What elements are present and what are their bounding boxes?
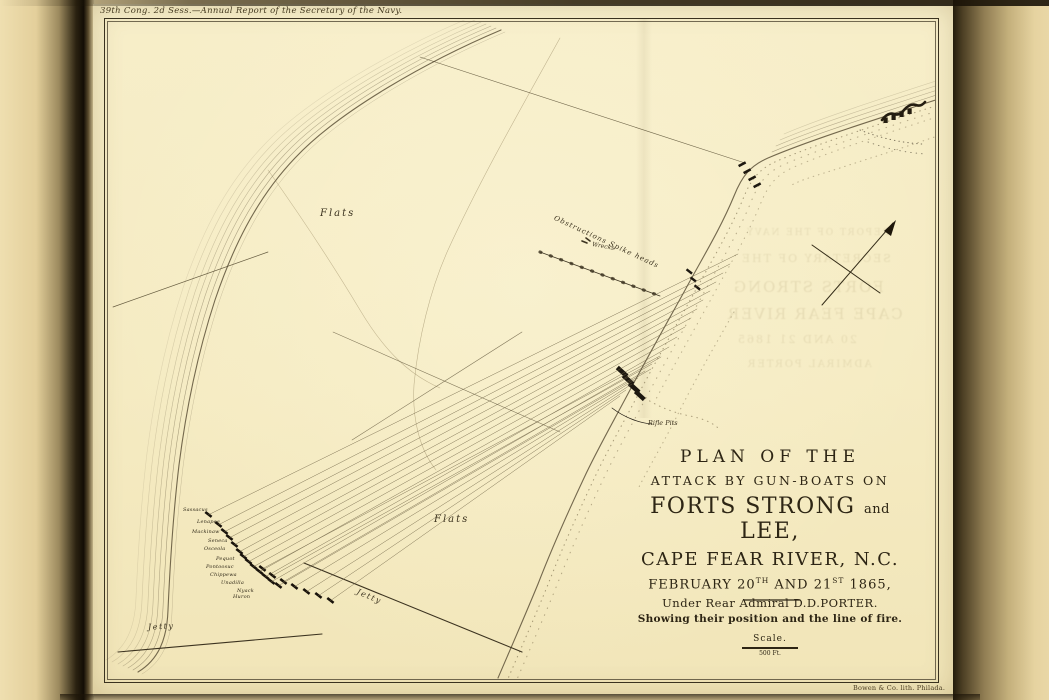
scale-label: Scale. xyxy=(620,634,920,644)
title-date-a: FEBRUARY 20 xyxy=(648,577,755,592)
congress-annotation: 39th Cong. 2d Sess.—Annual Report of the… xyxy=(100,6,402,16)
gunboat-name: Unadilla xyxy=(221,580,244,586)
title-line-2: ATTACK BY GUN-BOATS ON xyxy=(620,473,920,488)
gunboat-name: Chippewa xyxy=(210,572,237,578)
scale-value: 500 Ft. xyxy=(620,650,920,657)
title-and: and xyxy=(864,502,890,517)
rifle-pits-label: Rifle Pits xyxy=(648,419,678,427)
scale-bar-line xyxy=(742,647,798,648)
title-date-sup1: TH xyxy=(756,576,770,585)
title-line-4: CAPE FEAR RIVER, N.C. xyxy=(620,549,920,570)
flats-label-upper: Flats xyxy=(320,208,355,219)
title-date-b: AND 21 xyxy=(769,577,832,592)
gunboat-name: Sassacus xyxy=(183,507,208,513)
title-date-c: 1865, xyxy=(844,577,891,592)
gunboat-name: Pequot xyxy=(216,556,235,562)
gunboat-name: Huron xyxy=(233,594,250,600)
title-line-6: Under Rear Admiral D.D.PORTER. xyxy=(620,596,920,610)
title-line-5: FEBRUARY 20TH AND 21ST 1865, xyxy=(620,576,920,592)
title-lee: LEE, xyxy=(740,519,800,544)
title-block: PLAN OF THE ATTACK BY GUN-BOATS ON FORTS… xyxy=(620,447,920,657)
gunboat-name: Lenapee xyxy=(197,519,220,525)
gunboat-name: Osceola xyxy=(204,546,225,552)
title-forts: FORTS STRONG xyxy=(650,494,864,519)
gunboat-name: Pontoosuc xyxy=(206,564,234,570)
title-date-sup2: ST xyxy=(832,576,844,585)
lithographer-imprint: Bowen & Co. lith. Philada. xyxy=(853,684,945,692)
jetty-label-southwest: Jetty xyxy=(148,621,175,631)
gunboat-name: Seneca xyxy=(208,538,228,544)
gunboat-name: Mackinaw xyxy=(192,529,220,535)
scanned-map-photo: REPORT OF THE NAVY SECRETARY OF THE FORT… xyxy=(0,0,1049,700)
title-line-1: PLAN OF THE xyxy=(620,447,920,467)
title-line-3: FORTS STRONG and LEE, xyxy=(620,494,920,544)
title-line-7: Showing their position and the line of f… xyxy=(620,613,920,625)
flats-label-lower: Flats xyxy=(434,514,469,525)
